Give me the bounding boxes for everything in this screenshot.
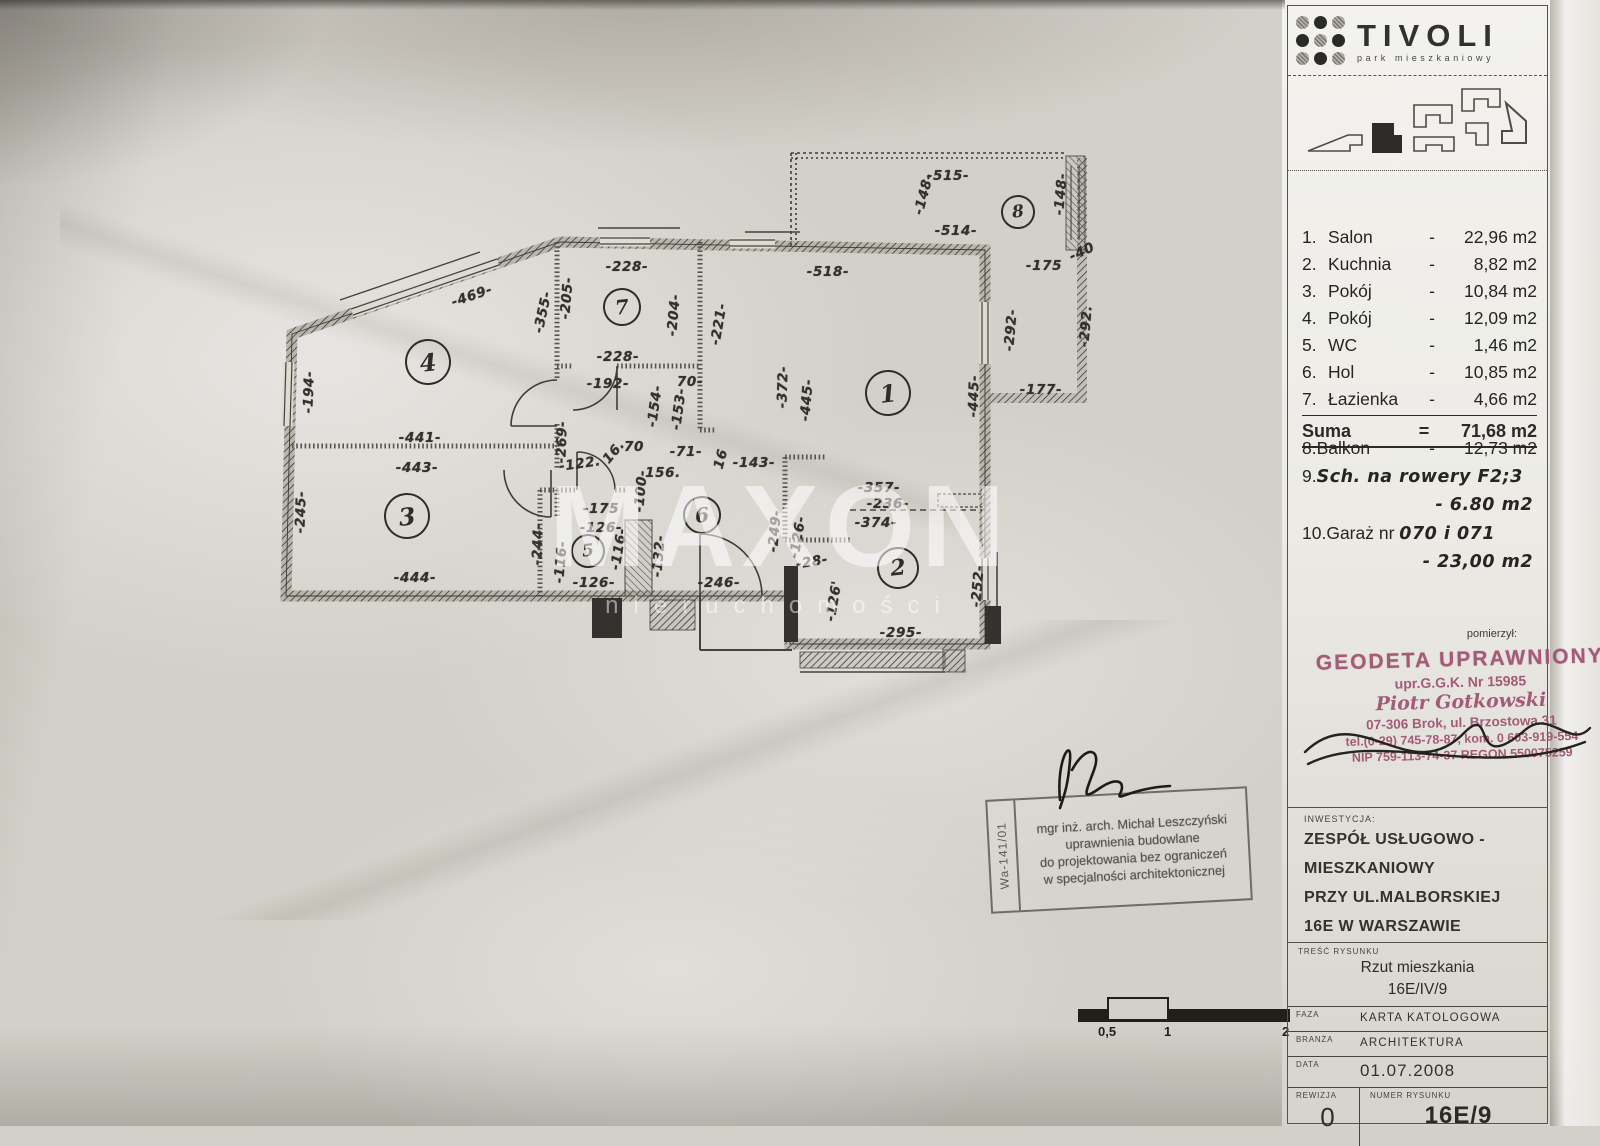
- branza-value: ARCHITEKTURA: [1360, 1032, 1547, 1056]
- garage-label: 10.Garaż nr: [1302, 523, 1394, 543]
- entrance-details: [592, 566, 1001, 672]
- room-list-row: 7.Łazienka-4,66 m2: [1302, 386, 1537, 413]
- balkon-value: 12,73 m2: [1445, 434, 1537, 462]
- revision-value: 0: [1296, 1102, 1359, 1133]
- balkon-label: Balkon: [1317, 438, 1371, 458]
- interior-walls: [292, 242, 850, 596]
- scale-bar-segment: [1078, 1009, 1108, 1022]
- pass-through: [938, 494, 984, 507]
- scale-bar-segment: [1107, 1019, 1169, 1022]
- date-value: 01.07.2008: [1360, 1057, 1547, 1087]
- drawing-title: Rzut mieszkania: [1288, 958, 1547, 978]
- title-block: TIVOLI park mieszkaniowy 1.Salon-22,96 m…: [1287, 5, 1548, 1124]
- room-list-row: 3.Pokój-10,84 m2: [1302, 278, 1537, 305]
- balcony-railing: [791, 153, 1064, 246]
- garage-value-handwritten: - 23,00 m2: [1302, 548, 1537, 576]
- extra-areas-list: 8.Balkon - 12,73 m2 9.Sch. na rowery F2;…: [1288, 434, 1547, 576]
- room-list-row: 2.Kuchnia-8,82 m2: [1302, 251, 1537, 278]
- highlighted-building: [1372, 123, 1402, 153]
- scale-bar-segment: [1168, 1009, 1290, 1022]
- inwestycja-section: INWESTYCJA: ZESPÓŁ USŁUGOWO - MIESZKANIO…: [1288, 807, 1547, 940]
- tresc-section: TREŚĆ RYSUNKU Rzut mieszkania 16E/IV/9: [1288, 942, 1547, 1006]
- scanned-floor-plan-page: { "logo": {"brand": "TIVOLI", "subtitle"…: [0, 0, 1600, 1126]
- scale-label: 1: [1164, 1024, 1171, 1039]
- room-area-list: 1.Salon-22,96 m22.Kuchnia-8,82 m23.Pokój…: [1288, 224, 1547, 448]
- logo-row: TIVOLI park mieszkaniowy: [1288, 6, 1547, 76]
- faza-value: KARTA KATOLOGOWA: [1360, 1007, 1547, 1031]
- scale-label: 0,5: [1098, 1024, 1116, 1039]
- storage-value-handwritten: - 6.80 m2: [1302, 491, 1537, 519]
- room-list-row: 1.Salon-22,96 m2: [1302, 224, 1537, 251]
- room-list-row: 5.WC-1,46 m2: [1302, 332, 1537, 359]
- brand-name: TIVOLI: [1357, 20, 1499, 51]
- garage-number-handwritten: 070 i 071: [1399, 524, 1495, 544]
- scale-bar: 0,5 1 2: [1078, 995, 1293, 1037]
- wardrobe: [625, 520, 652, 596]
- room-list-row: 6.Hol-10,85 m2: [1302, 359, 1537, 386]
- tresc-label: TREŚĆ RYSUNKU: [1288, 947, 1547, 956]
- architect-stamp: Wa-141/01 mgr inż. arch. Michał Leszczyń…: [985, 786, 1253, 914]
- storage-label-handwritten: Sch. na rowery F2;3: [1317, 467, 1523, 487]
- terrace-walls: [988, 156, 1085, 398]
- apartment-id: 16E/IV/9: [1288, 980, 1547, 1000]
- tivoli-logo-icon: [1296, 16, 1347, 67]
- inwestycja-label: INWESTYCJA:: [1304, 814, 1547, 824]
- geodeta-stamp: GEODETA UPRAWNIONY upr.G.G.K. Nr 15985 P…: [1295, 644, 1600, 767]
- pomierzyl-label: pomierzył:: [1467, 628, 1517, 640]
- meta-table: FAZA KARTA KATOLOGOWA BRANŻA ARCHITEKTUR…: [1288, 1006, 1547, 1146]
- brand-subtitle: park mieszkaniowy: [1357, 54, 1499, 63]
- site-plan-thumbnail: [1288, 76, 1547, 171]
- room-list-row: 4.Pokój-12,09 m2: [1302, 305, 1537, 332]
